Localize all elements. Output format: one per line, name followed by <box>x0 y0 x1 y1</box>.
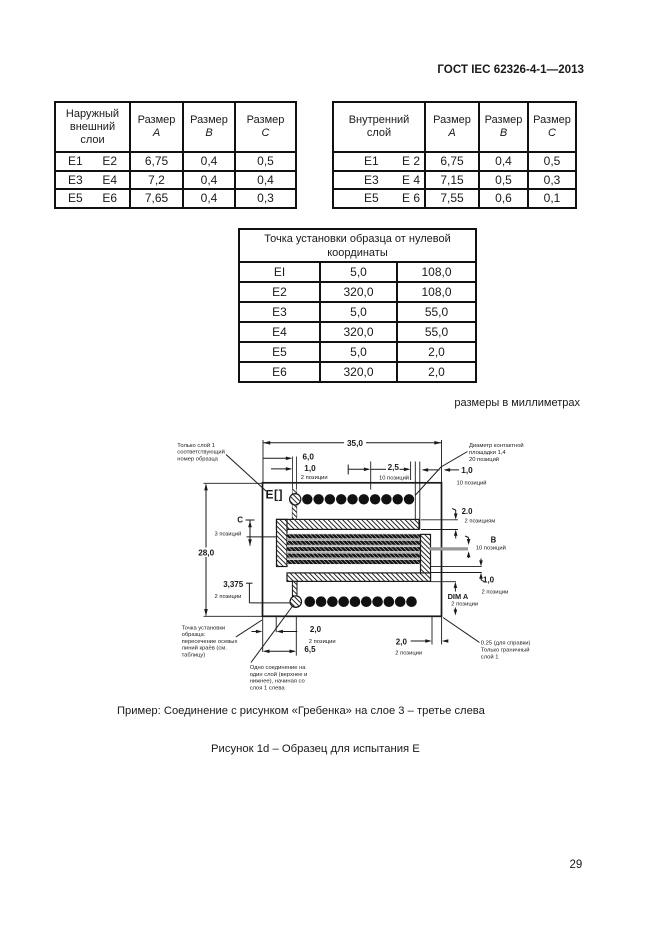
svg-text:C: C <box>237 515 243 524</box>
svg-text:соответствующий: соответствующий <box>177 449 225 456</box>
svg-text:пересечение осевых: пересечение осевых <box>182 639 238 645</box>
svg-text:0.25 (для справки): 0.25 (для справки) <box>481 640 531 646</box>
svg-text:Только граничный: Только граничный <box>481 646 530 653</box>
svg-text:Диаметр контактной: Диаметр контактной <box>469 442 524 449</box>
svg-text:образца:: образца: <box>182 632 206 638</box>
svg-text:6,5: 6,5 <box>304 645 316 654</box>
svg-text:слоя 1 слева: слоя 1 слева <box>250 685 286 691</box>
svg-text:3,375: 3,375 <box>223 580 244 589</box>
svg-text:6,0: 6,0 <box>303 453 315 462</box>
svg-text:Одно соединение на: Одно соединение на <box>250 665 307 671</box>
svg-text:28,0: 28,0 <box>198 548 214 557</box>
svg-text:2,5: 2,5 <box>388 463 400 472</box>
svg-text:2,0: 2,0 <box>310 625 322 634</box>
svg-text:E[]: E[] <box>266 488 284 502</box>
svg-text:10 позиций: 10 позиций <box>379 475 409 482</box>
svg-text:Только слой 1: Только слой 1 <box>177 442 215 449</box>
svg-text:10 позиций: 10 позиций <box>457 479 487 486</box>
svg-text:35,0: 35,0 <box>347 439 363 448</box>
svg-text:2 позиции: 2 позиции <box>301 475 328 481</box>
svg-text:1,0: 1,0 <box>461 466 473 475</box>
svg-text:2 позиции: 2 позиции <box>451 602 478 608</box>
svg-text:один слой (верхнее и: один слой (верхнее и <box>250 671 308 678</box>
svg-text:таблицу): таблицу) <box>182 652 206 658</box>
svg-text:2 позиции: 2 позиции <box>395 651 422 657</box>
svg-text:Точка установки: Точка установки <box>182 626 226 632</box>
svg-text:номер образца: номер образца <box>177 456 218 462</box>
svg-text:2 позиции: 2 позиции <box>215 594 242 600</box>
svg-text:2.0: 2.0 <box>462 507 474 516</box>
svg-text:2 позициям: 2 позициям <box>465 518 496 524</box>
svg-text:1,0: 1,0 <box>483 576 495 585</box>
svg-text:слой 1: слой 1 <box>481 653 499 660</box>
svg-text:10 позиций: 10 позиций <box>476 545 506 552</box>
svg-text:2,0: 2,0 <box>396 638 408 647</box>
svg-text:2 позиции: 2 позиции <box>482 590 509 596</box>
svg-text:площадки 1,4: площадки 1,4 <box>469 450 506 456</box>
svg-text:DIM A: DIM A <box>448 592 469 601</box>
svg-text:B: B <box>491 536 497 545</box>
svg-text:1,0: 1,0 <box>304 464 316 473</box>
svg-text:нижнее), начиная со: нижнее), начиная со <box>250 679 305 685</box>
svg-text:3 позиций: 3 позиций <box>215 530 242 537</box>
svg-text:линий краёв (см.: линий краёв (см. <box>182 645 228 652</box>
svg-text:20 позиций: 20 позиций <box>469 456 499 463</box>
